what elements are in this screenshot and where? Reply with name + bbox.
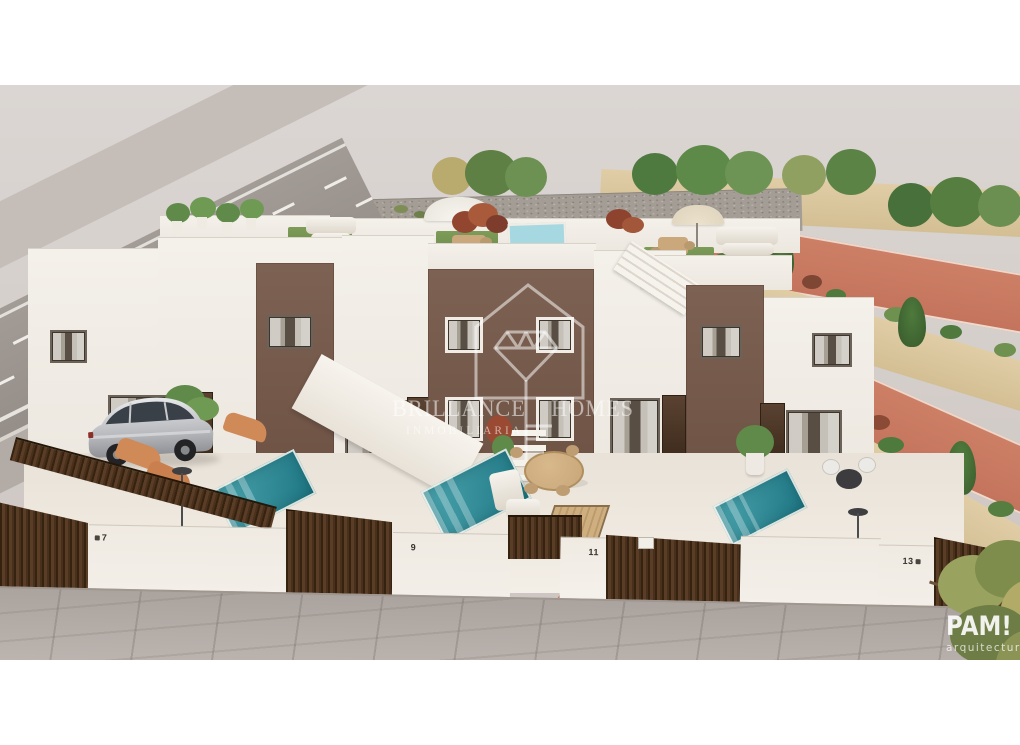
tree [632,153,678,195]
bush [940,325,962,339]
rooftop-chair [684,241,695,250]
plant-pot [746,453,764,475]
window [267,315,313,349]
tree [826,149,876,195]
tree [782,155,826,195]
watermark-subtitle: INMOBILIARIA [406,425,523,437]
curtain [53,333,84,360]
red-shrub [802,275,822,289]
tree [505,157,547,197]
grass-tuft [394,205,408,213]
bush [988,501,1014,517]
plant-pot [246,218,256,230]
render-scene: 7 9 11 13 BRILLANCE HOMES BRILLANCEHOMES… [0,85,1020,660]
house-number-text: 7 [102,533,108,543]
window [50,330,87,363]
window [700,325,742,359]
house-number-text: 9 [411,542,417,552]
parapet-plant [166,203,190,223]
plant-pot [172,221,182,233]
parapet-plant [216,203,240,223]
tree [930,177,984,227]
house-number-text: 11 [588,547,599,557]
garden-chair [524,483,538,494]
house-number-text: 13 [903,556,914,566]
curtain [703,328,739,356]
rooftop-sofa [306,217,356,234]
garden-chair [556,485,570,496]
window [812,333,852,367]
bush [994,343,1016,357]
tree [676,145,732,195]
plant-pot [197,217,207,229]
curtain [270,318,310,346]
watermark-brand: BRILLANCE HOMES BRILLANCEHOMES [401,396,624,422]
watermark-brand-line: BRILLANCEHOMES [392,396,634,422]
bistro-chair [858,457,876,473]
number-plate-icon [916,559,921,564]
house-number-9: 9 [411,542,417,552]
house-number-11: 11 [588,547,599,557]
tree [725,151,773,195]
bougainvillea [622,217,644,233]
studio-logo-tagline: arquitectura [946,642,1020,654]
front-door [662,395,686,457]
rooftop-sofa [722,243,774,255]
studio-logo-name: PAM! [946,613,1009,640]
tree [888,183,934,227]
house-number-13: 13 [903,556,921,566]
plant-pot [222,222,232,234]
curtain [815,336,849,364]
parapet [428,243,596,272]
number-plate-icon [95,535,100,540]
fence-plate [638,537,654,549]
bistro-table [836,469,862,489]
house-number-7: 7 [95,532,108,542]
logo-stem-bars [526,426,552,452]
watermark-logo [466,280,590,465]
front-fence [286,509,392,603]
bush [878,437,904,453]
studio-logo: PAM! arquitectura [946,613,1020,654]
tree [978,185,1020,227]
render-page: 7 9 11 13 BRILLANCE HOMES BRILLANCEHOMES… [0,0,1020,745]
bougainvillea [486,215,508,233]
parapet-plant [190,197,216,219]
parapet-plant [240,199,264,219]
logo-diamond [495,332,557,380]
